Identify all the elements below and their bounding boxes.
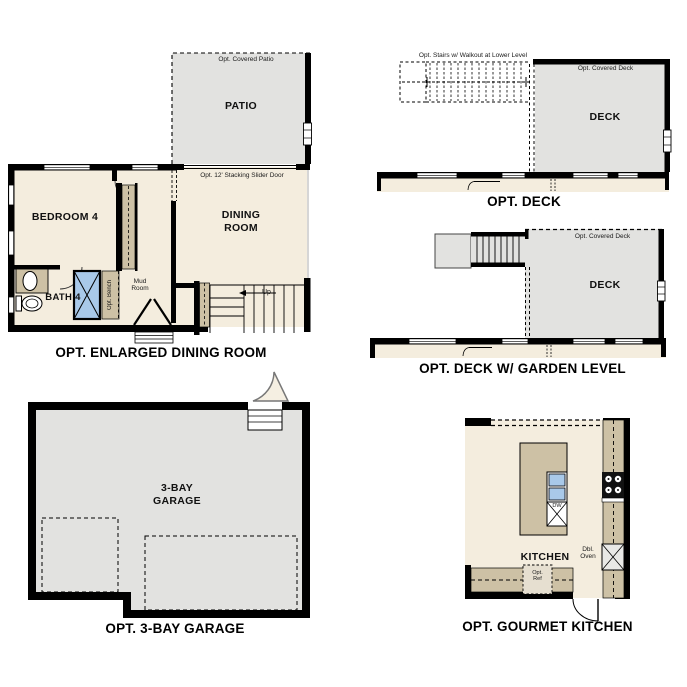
figure-enlarged-dining-room: Opt. Covered Patio PATIO Opt. 12' Stacki… (8, 45, 314, 367)
up-label: Up (262, 289, 282, 297)
figure-deck-garden-level: Opt. Covered Deck DECK OPT. DECK W/ GARD… (365, 225, 680, 380)
right-counter (603, 420, 624, 598)
deck-plan-drawing (368, 48, 680, 213)
slider-door-label: Opt. 12' Stacking Slider Door (173, 172, 311, 179)
garage-floor (36, 410, 302, 610)
double-oven-icon (602, 544, 624, 570)
garage-label: 3-BAY GARAGE (145, 482, 209, 508)
figure-title-kitchen: OPT. GOURMET KITCHEN (455, 619, 640, 634)
figure-gourmet-kitchen: KITCHEN DW Dbl. Oven Opt. Ref OPT. GOURM… (455, 410, 680, 640)
figure-3-bay-garage: 3-BAY GARAGE OPT. 3-BAY GARAGE (20, 370, 330, 642)
bottom-counter (471, 565, 573, 594)
optional-stairs (400, 62, 529, 102)
kitchen-plan-drawing (455, 410, 680, 640)
opt-stairs-label: Opt. Stairs w/ Walkout at Lower Level (388, 52, 558, 59)
cooktop-icon (602, 472, 624, 502)
covered-deck-label: Opt. Covered Deck (542, 233, 663, 240)
entry-door (573, 599, 598, 621)
enlarged-dining-plan-drawing (8, 45, 314, 367)
mud-room-label: Mud Room (127, 278, 153, 293)
figure-title-deck: OPT. DECK (368, 194, 680, 209)
house-wall (377, 172, 669, 192)
house-wall (370, 338, 666, 358)
kitchen-label: KITCHEN (510, 551, 580, 564)
figure-title-enlarged-dining: OPT. ENLARGED DINING ROOM (8, 345, 314, 360)
figure-title-garage: OPT. 3-BAY GARAGE (20, 621, 330, 636)
deck-label: DECK (565, 111, 645, 124)
covered-patio-label: Opt. Covered Patio (176, 56, 316, 63)
deck-label: DECK (565, 279, 645, 292)
kitchen-island (520, 443, 567, 535)
figure-opt-deck: Opt. Stairs w/ Walkout at Lower Level Op… (368, 48, 680, 213)
dining-room-label: DINING ROOM (211, 209, 271, 235)
bath4-label: BATH 4 (43, 292, 83, 304)
garden-stairs (435, 232, 525, 268)
opt-ref-label: Opt. Ref (529, 570, 546, 583)
covered-deck-label: Opt. Covered Deck (545, 65, 666, 72)
service-door (248, 372, 288, 430)
sink-icon (16, 269, 48, 293)
bedroom4-label: BEDROOM 4 (20, 211, 110, 224)
deck-garden-plan-drawing (365, 225, 680, 380)
floorplan-options-sheet: Opt. Covered Patio PATIO Opt. 12' Stacki… (0, 0, 687, 687)
toilet-icon (16, 296, 42, 311)
opt-bench-label: Opt. Bench (101, 271, 119, 319)
figure-title-deck-garden: OPT. DECK W/ GARDEN LEVEL (365, 361, 680, 376)
dbl-oven-label: Dbl. Oven (576, 546, 600, 561)
dw-label: DW (547, 503, 567, 509)
patio-label: PATIO (191, 100, 291, 113)
